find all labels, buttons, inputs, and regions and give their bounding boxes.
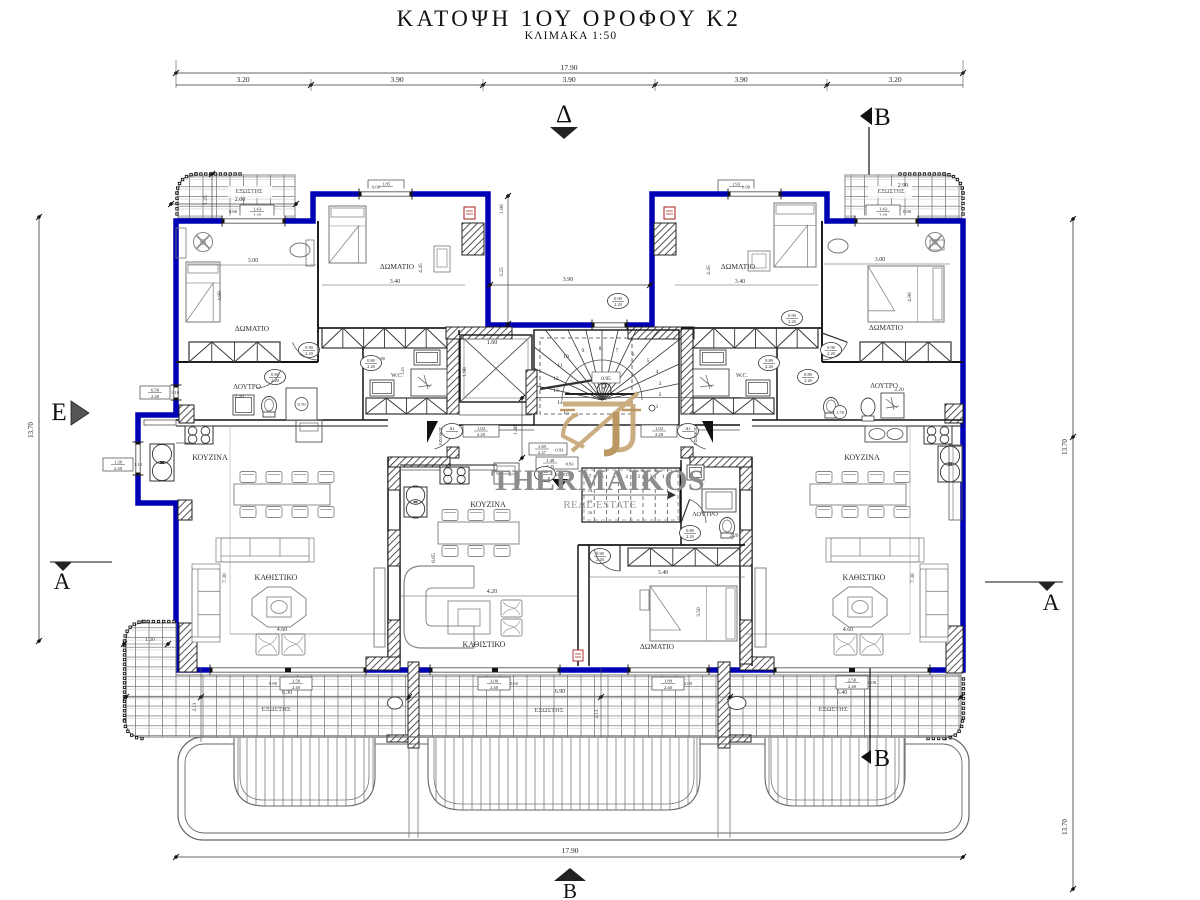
svg-text:0.80: 0.80 (367, 358, 375, 363)
svg-text:2.40: 2.40 (151, 394, 160, 399)
svg-text:A: A (54, 569, 71, 594)
svg-text:ΚΟΥΖΙΝΑ: ΚΟΥΖΙΝΑ (470, 500, 506, 509)
svg-text:2: 2 (659, 392, 662, 398)
svg-text:0.60: 0.60 (229, 209, 238, 214)
svg-text:3.90: 3.90 (563, 277, 574, 283)
svg-text:2.20: 2.20 (614, 302, 622, 307)
svg-text:0.90: 0.90 (305, 345, 313, 350)
svg-text:4.80: 4.80 (907, 292, 913, 302)
svg-text:2.90: 2.90 (898, 183, 909, 189)
svg-text:ΚΑΘΙΣΤΙΚΟ: ΚΑΘΙΣΤΙΚΟ (255, 573, 298, 582)
svg-text:2.20: 2.20 (655, 432, 664, 437)
svg-text:2.13: 2.13 (193, 702, 198, 711)
svg-text:6.50: 6.50 (151, 387, 160, 392)
svg-text:0.90: 0.90 (596, 551, 604, 556)
svg-text:4: 4 (656, 369, 659, 375)
svg-text:6.30: 6.30 (282, 690, 293, 696)
svg-text:2.20: 2.20 (730, 534, 739, 539)
svg-text:6.90: 6.90 (555, 689, 566, 695)
svg-text:3.00: 3.00 (248, 258, 259, 264)
svg-text:Δ1: Δ1 (449, 426, 454, 431)
svg-text:4.45: 4.45 (418, 263, 424, 273)
svg-text:B: B (874, 746, 890, 772)
svg-text:2.40: 2.40 (292, 685, 301, 690)
svg-text:Ε: Ε (51, 399, 66, 426)
svg-text:2.20: 2.20 (234, 394, 244, 400)
svg-text:2.20: 2.20 (367, 364, 375, 369)
svg-text:17.90: 17.90 (561, 63, 578, 72)
svg-text:12: 12 (553, 376, 559, 382)
svg-text:Δ: Δ (556, 101, 572, 128)
svg-text:ΕΞΩΣΤΗΣ: ΕΞΩΣΤΗΣ (818, 706, 847, 713)
svg-text:2.13: 2.13 (595, 709, 600, 718)
svg-text:2.20: 2.20 (477, 432, 486, 437)
svg-text:3.25: 3.25 (499, 267, 505, 277)
svg-text:2.20: 2.20 (765, 364, 773, 369)
svg-text:4.20: 4.20 (487, 589, 498, 595)
svg-text:13.70: 13.70 (1061, 819, 1069, 835)
svg-text:3.00: 3.00 (875, 257, 886, 263)
svg-text:1.45: 1.45 (400, 366, 405, 375)
svg-text:ΔΩΜΑΤΙΟ: ΔΩΜΑΤΙΟ (721, 262, 756, 271)
svg-text:ΕΞΩΣΤΗΣ: ΕΞΩΣΤΗΣ (534, 707, 563, 714)
svg-text:17.90: 17.90 (562, 846, 579, 855)
svg-text:2.00: 2.00 (684, 681, 693, 686)
svg-text:10: 10 (563, 354, 569, 360)
svg-text:1.48: 1.48 (546, 458, 555, 463)
svg-text:1.10: 1.10 (171, 390, 180, 395)
svg-text:1.89: 1.89 (664, 678, 673, 683)
svg-text:1.98: 1.98 (462, 367, 468, 377)
svg-text:3.90: 3.90 (734, 75, 747, 84)
svg-text:1.69: 1.69 (538, 444, 547, 449)
svg-text:ΚΟΥΖΙΝΑ: ΚΟΥΖΙΝΑ (192, 453, 228, 462)
svg-text:5: 5 (647, 358, 650, 364)
svg-text:3.40: 3.40 (658, 570, 669, 576)
svg-text:0.60: 0.60 (510, 681, 519, 686)
svg-text:THERMAIKOS: THERMAIKOS (491, 464, 705, 497)
svg-text:1.43: 1.43 (879, 206, 888, 211)
svg-text:2.40: 2.40 (114, 466, 123, 471)
svg-text:13: 13 (553, 388, 559, 394)
svg-text:5.40: 5.40 (837, 690, 848, 696)
svg-text:3.90: 3.90 (562, 75, 575, 84)
svg-text:1.70: 1.70 (836, 410, 845, 415)
svg-text:4.45: 4.45 (706, 265, 712, 275)
svg-text:7.30: 7.30 (222, 573, 228, 583)
svg-text:ΔΩΜΑΤΙΟ: ΔΩΜΑΤΙΟ (235, 324, 270, 333)
svg-text:ΕΞΩΣΤΗΣ: ΕΞΩΣΤΗΣ (236, 189, 263, 195)
svg-text:ΕΙΣΟΔΟΣ: ΕΙΣΟΔΟΣ (693, 426, 698, 445)
svg-text:ΔΩΜΑΤΙΟ: ΔΩΜΑΤΙΟ (869, 323, 904, 332)
svg-text:2.20: 2.20 (686, 534, 694, 539)
svg-text:0.90: 0.90 (827, 345, 835, 350)
svg-text:3.50: 3.50 (696, 607, 702, 617)
svg-text:B: B (874, 104, 891, 131)
svg-text:0.90: 0.90 (614, 296, 622, 301)
svg-text:1.25: 1.25 (203, 195, 209, 205)
svg-text:2.40: 2.40 (848, 684, 857, 689)
svg-text:0.93: 0.93 (555, 447, 564, 452)
svg-text:11: 11 (557, 363, 563, 369)
svg-text:0.90: 0.90 (903, 209, 912, 214)
svg-text:2.27: 2.27 (538, 450, 547, 455)
svg-text:1: 1 (656, 404, 659, 410)
svg-text:0.80: 0.80 (765, 358, 773, 363)
svg-text:W.C.: W.C. (736, 373, 749, 379)
svg-text:1.02: 1.02 (655, 426, 664, 431)
svg-text:0.95: 0.95 (601, 376, 611, 382)
svg-text:ΕΞΩΣΤΗΣ: ΕΞΩΣΤΗΣ (261, 706, 290, 713)
svg-text:0.08: 0.08 (868, 680, 877, 685)
svg-text:3.40: 3.40 (390, 279, 401, 285)
svg-text:4.80: 4.80 (217, 291, 223, 301)
svg-text:2.20: 2.20 (894, 387, 904, 393)
svg-text:B: B (563, 879, 577, 900)
svg-text:2.20: 2.20 (788, 319, 796, 324)
svg-text:6.65: 6.65 (431, 553, 437, 563)
svg-text:2.20: 2.20 (804, 378, 812, 383)
svg-text:0.80: 0.80 (271, 372, 279, 377)
svg-text:1.20: 1.20 (145, 637, 155, 643)
svg-text:Δ1: Δ1 (685, 426, 690, 431)
svg-text:3: 3 (659, 381, 662, 387)
svg-text:0.80: 0.80 (804, 372, 812, 377)
svg-text:ΚΑΤΟΨΗ 1ΟΥ ΟΡΟΦΟΥ Κ2: ΚΑΤΟΨΗ 1ΟΥ ΟΡΟΦΟΥ Κ2 (397, 6, 742, 31)
svg-text:REAL ESTATE: REAL ESTATE (563, 499, 636, 511)
svg-text:4.60: 4.60 (843, 627, 854, 633)
svg-text:ΔΩΜΑΤΙΟ: ΔΩΜΑΤΙΟ (640, 642, 675, 651)
svg-text:2.00: 2.00 (235, 197, 246, 203)
svg-text:3.50: 3.50 (292, 678, 301, 683)
svg-text:0.70: 0.70 (297, 402, 306, 407)
svg-text:ΚΑΘΙΣΤΙΚΟ: ΚΑΘΙΣΤΙΚΟ (463, 640, 506, 649)
svg-text:7.30: 7.30 (910, 573, 916, 583)
svg-text:ΔΩΜΑΤΙΟ: ΔΩΜΑΤΙΟ (380, 262, 415, 271)
svg-text:2.50: 2.50 (848, 677, 857, 682)
svg-text:ΚΛΙΜΑΚΑ 1:50: ΚΛΙΜΑΚΑ 1:50 (525, 30, 618, 42)
svg-text:1.30: 1.30 (114, 459, 123, 464)
svg-text:4.60: 4.60 (277, 627, 288, 633)
svg-text:ΛΟΥΤΡΟ: ΛΟΥΤΡΟ (233, 383, 261, 391)
svg-text:1.60: 1.60 (487, 340, 498, 346)
svg-text:1.10: 1.10 (134, 462, 143, 467)
svg-text:A: A (1043, 590, 1060, 615)
svg-text:1.85: 1.85 (382, 181, 391, 186)
svg-text:0.80: 0.80 (686, 528, 694, 533)
svg-text:8: 8 (599, 346, 602, 352)
svg-text:9: 9 (582, 348, 585, 354)
svg-text:2.40: 2.40 (664, 685, 673, 690)
svg-text:ΚΑΘΙΣΤΙΚΟ: ΚΑΘΙΣΤΙΚΟ (843, 573, 886, 582)
svg-text:1.02: 1.02 (477, 426, 486, 431)
svg-text:0.80: 0.80 (269, 681, 278, 686)
svg-text:2.20: 2.20 (305, 351, 313, 356)
svg-text:0.90: 0.90 (788, 313, 796, 318)
svg-text:1.93: 1.93 (732, 181, 741, 186)
svg-text:3.40: 3.40 (735, 279, 746, 285)
svg-text:ΕΞΩΣΤΗΣ: ΕΞΩΣΤΗΣ (878, 189, 905, 195)
svg-text:1.80: 1.80 (499, 204, 505, 214)
svg-text:1.80: 1.80 (513, 425, 519, 435)
svg-text:14: 14 (557, 400, 563, 406)
svg-text:7: 7 (616, 348, 619, 354)
svg-text:13.70: 13.70 (1061, 439, 1069, 455)
svg-text:3.20: 3.20 (236, 75, 249, 84)
svg-text:2.40: 2.40 (490, 685, 499, 690)
svg-text:ΚΟΥΖΙΝΑ: ΚΟΥΖΙΝΑ (844, 453, 880, 462)
svg-text:3.90: 3.90 (390, 75, 403, 84)
svg-text:3.00: 3.00 (490, 678, 499, 683)
svg-text:3.20: 3.20 (888, 75, 901, 84)
svg-text:6: 6 (632, 352, 635, 358)
svg-text:1.43: 1.43 (253, 206, 262, 211)
svg-text:2.20: 2.20 (827, 351, 835, 356)
svg-text:13.70: 13.70 (27, 422, 35, 438)
